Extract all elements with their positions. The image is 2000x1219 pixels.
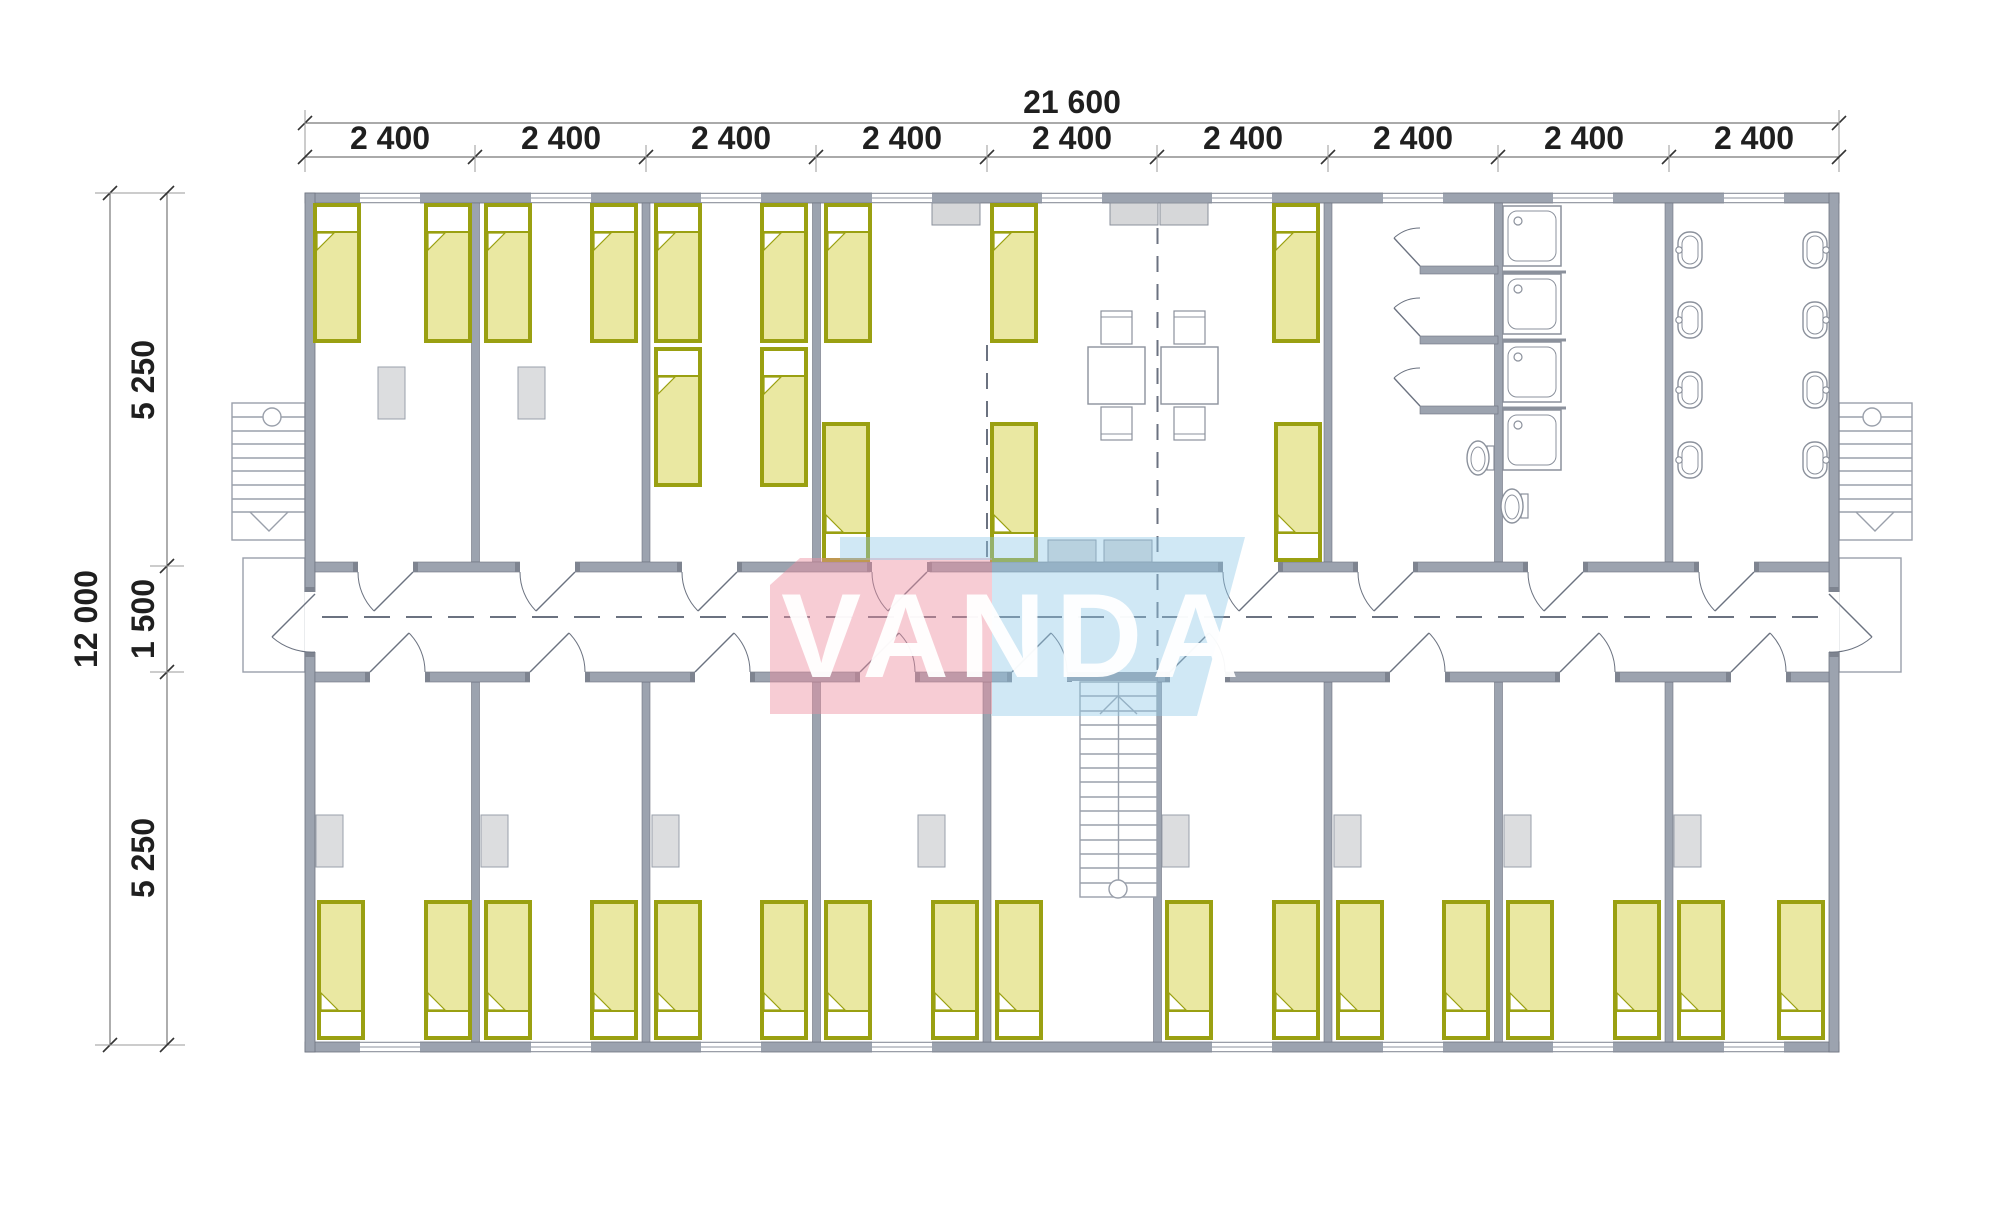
sink-symbol <box>1803 442 1829 478</box>
vanda-logo-text: VANDA <box>781 569 1249 703</box>
wardrobe-symbol <box>1504 815 1531 867</box>
sink-symbol <box>1803 302 1829 338</box>
counter-symbol <box>932 203 980 225</box>
bed-symbol <box>824 900 872 1040</box>
sink-symbol <box>1803 232 1829 268</box>
dimension-lines-top: 21 600 2 400 2 400 2 400 2 400 2 400 2 4… <box>298 84 1846 172</box>
table-symbol <box>1161 311 1218 440</box>
bed-symbol <box>760 203 808 343</box>
dimension-label-room-depth-bottom: 5 250 <box>125 818 161 898</box>
bed-symbol <box>654 203 702 343</box>
dimension-label-bay-9: 2 400 <box>1714 120 1794 156</box>
shower-symbol <box>1503 274 1561 334</box>
bed-symbol <box>424 900 472 1040</box>
bed-symbol <box>1677 900 1725 1040</box>
dimension-label-corridor: 1 500 <box>125 579 161 659</box>
bed-symbol <box>1442 900 1490 1040</box>
dimension-label-bay-5: 2 400 <box>1032 120 1112 156</box>
bed-symbol <box>424 203 472 343</box>
bed-symbol <box>995 900 1043 1040</box>
bed-symbol <box>484 203 532 343</box>
wardrobe-symbol <box>918 815 945 867</box>
dimension-label-bay-1: 2 400 <box>350 120 430 156</box>
bed-symbol <box>1336 900 1384 1040</box>
dimension-label-bay-6: 2 400 <box>1203 120 1283 156</box>
wardrobe-symbol <box>481 815 508 867</box>
external-stair-left <box>232 403 305 540</box>
bed-symbol <box>590 203 638 343</box>
vanda-watermark: VANDA <box>770 537 1249 716</box>
bed-symbol <box>1506 900 1554 1040</box>
sink-symbol <box>1676 442 1702 478</box>
bed-symbol <box>931 900 979 1040</box>
bed-symbol <box>1272 203 1320 343</box>
dimension-label-total-width: 21 600 <box>1023 84 1121 120</box>
interior-walls-top-zone <box>472 203 1674 562</box>
external-landing-right <box>1839 558 1901 672</box>
shower-symbol <box>1503 206 1561 266</box>
dimension-label-bay-4: 2 400 <box>862 120 942 156</box>
wardrobe-symbol <box>652 815 679 867</box>
bed-symbol <box>484 900 532 1040</box>
beds-bottom-row <box>317 900 1825 1040</box>
wardrobe-symbol <box>316 815 343 867</box>
bed-symbol <box>317 900 365 1040</box>
dining-tables <box>1088 311 1218 440</box>
dimension-label-total-depth: 12 000 <box>68 570 104 668</box>
shower-symbol <box>1503 342 1561 402</box>
wardrobe-symbol <box>1674 815 1701 867</box>
dimension-label-bay-8: 2 400 <box>1544 120 1624 156</box>
dimension-label-bay-2: 2 400 <box>521 120 601 156</box>
counter-symbol <box>1110 203 1158 225</box>
counter-symbol <box>1160 203 1208 225</box>
wardrobe-symbol <box>1334 815 1361 867</box>
wardrobe-symbol <box>1162 815 1189 867</box>
bed-symbol <box>590 900 638 1040</box>
bed-symbol <box>990 203 1038 343</box>
bed-symbol <box>760 347 808 487</box>
bed-symbol <box>824 203 872 343</box>
bed-symbol <box>313 203 361 343</box>
dimension-label-bay-3: 2 400 <box>691 120 771 156</box>
floor-plan-drawing: 21 600 2 400 2 400 2 400 2 400 2 400 2 4… <box>0 0 2000 1219</box>
external-stair-right <box>1839 403 1912 540</box>
bed-symbol <box>1274 422 1322 562</box>
dimension-label-room-depth-top: 5 250 <box>125 340 161 420</box>
table-symbol <box>1088 311 1145 440</box>
sink-symbol <box>1676 232 1702 268</box>
dimension-label-bay-7: 2 400 <box>1373 120 1453 156</box>
dimension-lines-left: 12 000 5 250 1 500 5 250 <box>68 186 185 1052</box>
windows-north <box>360 193 1784 204</box>
toilet-symbol <box>1501 489 1528 523</box>
wardrobe-symbol <box>378 367 405 419</box>
bed-symbol <box>654 347 702 487</box>
floor-plan-page: 21 600 2 400 2 400 2 400 2 400 2 400 2 4… <box>0 0 2000 1219</box>
external-landing-left <box>243 558 305 672</box>
washroom-sinks <box>1676 232 1829 478</box>
wardrobe-symbol <box>518 367 545 419</box>
bed-symbol <box>760 900 808 1040</box>
bed-symbol <box>1777 900 1825 1040</box>
shower-symbol <box>1503 410 1561 470</box>
bed-symbol <box>1613 900 1661 1040</box>
bed-symbol <box>1272 900 1320 1040</box>
bed-symbol <box>1165 900 1213 1040</box>
bed-symbol <box>654 900 702 1040</box>
toilet-stalls <box>1394 228 1498 475</box>
shower-room <box>1501 206 1566 523</box>
toilet-symbol <box>1467 441 1494 475</box>
sink-symbol <box>1676 372 1702 408</box>
sink-symbol <box>1676 302 1702 338</box>
sink-symbol <box>1803 372 1829 408</box>
